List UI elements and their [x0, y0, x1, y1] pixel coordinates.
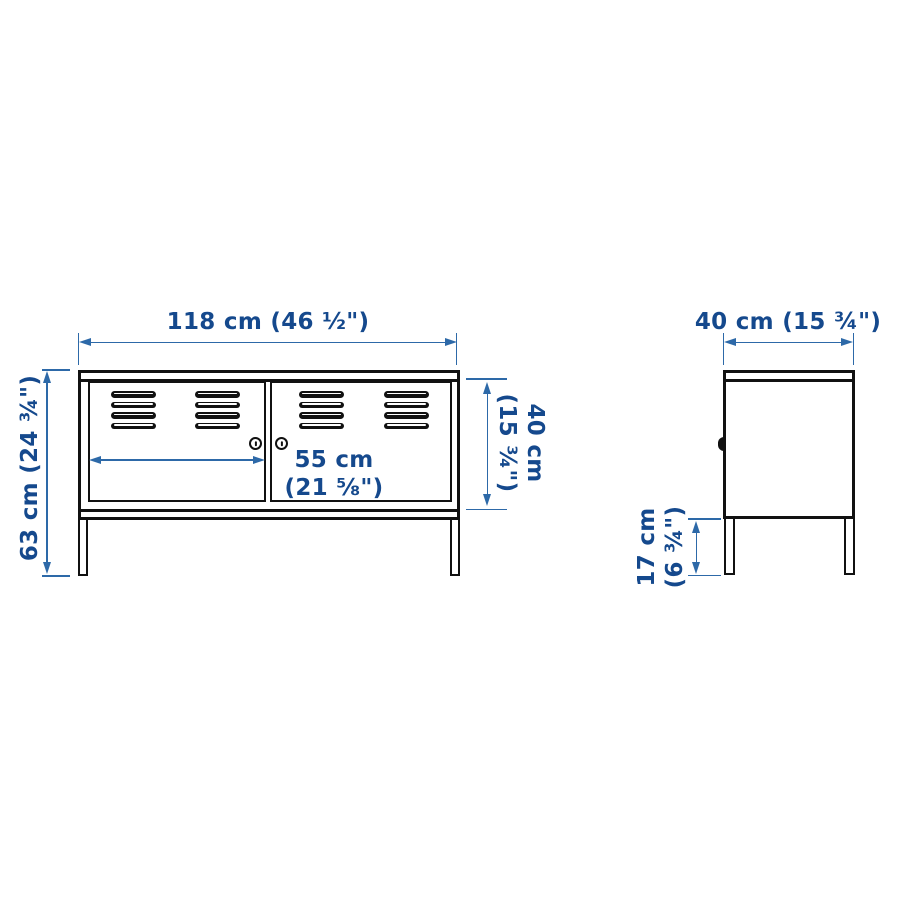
extension-line [853, 333, 855, 365]
door-width-dimension-label: 55 cm (21 ⅝") [285, 446, 384, 502]
keyhole-left-icon [249, 437, 262, 450]
leg-height-dimension-line [696, 531, 698, 563]
vent-slat [111, 402, 156, 409]
door-height-dimension-line [487, 393, 489, 496]
front-height-dimension-line [46, 382, 48, 563]
door-width-dimension-line [100, 459, 254, 461]
vent-slat [299, 391, 344, 398]
cabinet-leg-right [450, 520, 460, 576]
extension-line [466, 378, 507, 380]
vent-slat [384, 412, 429, 419]
product-dimension-diagram: 118 cm (46 ½") 55 cm (21 ⅝") 63 cm (24 ¾… [0, 0, 900, 900]
extension-line [78, 333, 80, 365]
arrowhead-down-icon [692, 562, 700, 574]
side-depth-dimension-line [736, 342, 842, 344]
extension-line [456, 333, 458, 365]
extension-line [466, 509, 507, 511]
door-height-value: 40 cm [521, 394, 549, 493]
vent-slat [384, 391, 429, 398]
cabinet-leg-left [78, 520, 88, 576]
arrowhead-right-icon [841, 338, 853, 346]
vent-slat [384, 423, 429, 430]
vent-slat [111, 412, 156, 419]
vent-slat [111, 423, 156, 430]
cabinet-side-body [723, 370, 855, 519]
door-height-imperial: (15 ¾") [493, 394, 521, 493]
side-depth-dimension-label: 40 cm (15 ¾") [695, 308, 881, 336]
vent-slat [195, 391, 240, 398]
door-width-value: 55 cm [285, 446, 384, 474]
extension-line [723, 333, 725, 365]
leg-height-value: 17 cm [633, 506, 661, 589]
vent-slat [111, 391, 156, 398]
vent-slat [299, 423, 344, 430]
vent-grille [111, 391, 156, 429]
vent-slat [384, 402, 429, 409]
vent-slat [299, 412, 344, 419]
front-height-dimension-label: 63 cm (24 ¾") [16, 375, 44, 561]
leg-height-imperial: (6 ¾") [661, 506, 689, 589]
arrowhead-left-icon [89, 456, 101, 464]
cabinet-bottom-rail-line [81, 509, 457, 512]
vent-slat [195, 402, 240, 409]
vent-slat [195, 412, 240, 419]
side-top-rail-line [726, 379, 852, 382]
arrowhead-left-icon [79, 338, 91, 346]
leg-height-dimension-label: 17 cm (6 ¾") [633, 506, 689, 589]
arrowhead-down-icon [43, 562, 51, 574]
lock-knob-icon [718, 437, 725, 451]
vent-grille [195, 391, 240, 429]
side-leg-front [724, 519, 735, 575]
arrowhead-up-icon [43, 371, 51, 383]
door-width-imperial: (21 ⅝") [285, 474, 384, 502]
extension-line [688, 575, 721, 577]
arrowhead-up-icon [483, 382, 491, 394]
door-height-dimension-label: 40 cm (15 ¾") [493, 394, 549, 493]
extension-line [688, 518, 721, 520]
front-width-dimension-label: 118 cm (46 ½") [167, 308, 370, 336]
front-width-dimension-line [91, 342, 446, 344]
arrowhead-left-icon [724, 338, 736, 346]
vent-grille [299, 391, 344, 429]
arrowhead-right-icon [253, 456, 265, 464]
extension-line [42, 575, 70, 577]
vent-slat [195, 423, 240, 430]
extension-line [42, 369, 70, 371]
side-leg-back [844, 519, 855, 575]
arrowhead-up-icon [692, 521, 700, 533]
arrowhead-down-icon [483, 494, 491, 506]
vent-grille [384, 391, 429, 429]
vent-slat [299, 402, 344, 409]
